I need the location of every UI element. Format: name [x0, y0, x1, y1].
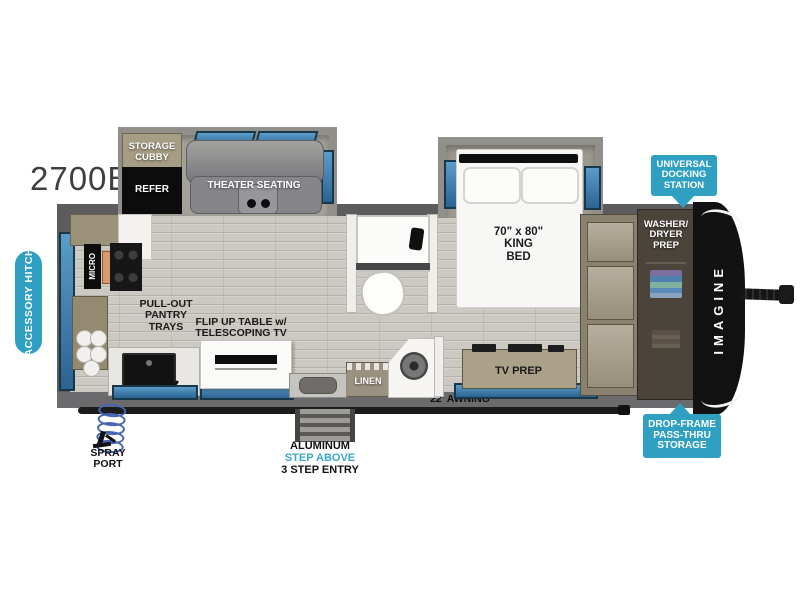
range-cooktop	[110, 243, 142, 291]
wardrobe-cubby	[587, 324, 634, 388]
closet-shelf-line	[646, 262, 686, 264]
spray-port-label: SPRAY PORT	[78, 448, 138, 471]
drop-frame-badge: DROP-FRAME PASS-THRU STORAGE	[643, 414, 721, 458]
brand-wordmark: IMAGINE	[701, 238, 735, 380]
pillow	[521, 167, 579, 204]
theater-seating-label: THEATER SEATING	[186, 181, 322, 192]
universal-docking-pointer	[672, 196, 694, 208]
micro-label: MICRO	[88, 253, 97, 280]
king-bed-label: 70" x 80" KING BED	[456, 226, 581, 263]
cupholder-icon	[247, 199, 256, 208]
refrigerator: REFER	[122, 167, 182, 214]
wardrobe-cubby	[587, 222, 634, 262]
plate-icon	[83, 360, 100, 377]
washer-dryer-label: WASHER/ DRYER PREP	[638, 220, 694, 251]
entry-steps	[295, 409, 355, 442]
console-item	[548, 345, 564, 352]
hitch-tongue	[740, 288, 784, 301]
folded-clothes	[650, 270, 682, 298]
flip-table-label: FLIP UP TABLE w/ TELESCOPING TV	[190, 317, 292, 340]
kitchen-window	[112, 385, 198, 400]
hitch-coupler	[779, 285, 794, 304]
awning-roll-endcap	[618, 405, 630, 415]
plate-icon	[90, 330, 107, 347]
wardrobe-cubby	[587, 266, 634, 320]
shower-threshold	[356, 263, 430, 270]
drop-frame-label: DROP-FRAME PASS-THRU STORAGE	[648, 420, 716, 452]
vanity-wall	[434, 336, 444, 397]
accessory-hitch-label: ACCESSORY HITCH	[23, 248, 35, 356]
console-item	[472, 344, 496, 352]
floorplan-canvas: 2700BS ACCESSORY HITCH 22' AWNING STORAG…	[0, 0, 800, 600]
console-item	[508, 344, 542, 352]
headboard	[459, 154, 578, 163]
bed-slide-window-right	[584, 166, 601, 210]
vanity-sink-bowl	[400, 352, 428, 380]
linen-closet: LINEN	[346, 362, 390, 397]
pillow	[463, 167, 521, 204]
wardrobe-shelves	[580, 214, 639, 396]
storage-cubby-label: STORAGE CUBBY	[129, 142, 176, 163]
cupholder-icon	[261, 199, 270, 208]
accessory-hitch-badge: ACCESSORY HITCH	[15, 251, 42, 354]
microwave: MICRO	[84, 244, 101, 289]
universal-docking-badge: UNIVERSAL DOCKING STATION	[651, 155, 717, 196]
overhead-cabinet	[70, 214, 122, 246]
refer-label: REFER	[135, 185, 169, 196]
entry-step-above	[299, 377, 337, 394]
imagine-logo: IMAGINE	[711, 264, 726, 355]
flip-up-table	[200, 340, 292, 389]
telescoping-tv	[215, 355, 277, 364]
tv-shadow-line	[215, 368, 277, 370]
universal-docking-label: UNIVERSAL DOCKING STATION	[657, 160, 712, 191]
washer-dryer-closet: WASHER/ DRYER PREP	[637, 209, 695, 400]
linen-label: LINEN	[347, 377, 389, 387]
folded-clothes	[652, 330, 680, 348]
entry-count-label: 3 STEP ENTRY	[270, 465, 370, 477]
sink-drain	[146, 360, 152, 366]
tv-prep-label: TV PREP	[462, 366, 575, 378]
